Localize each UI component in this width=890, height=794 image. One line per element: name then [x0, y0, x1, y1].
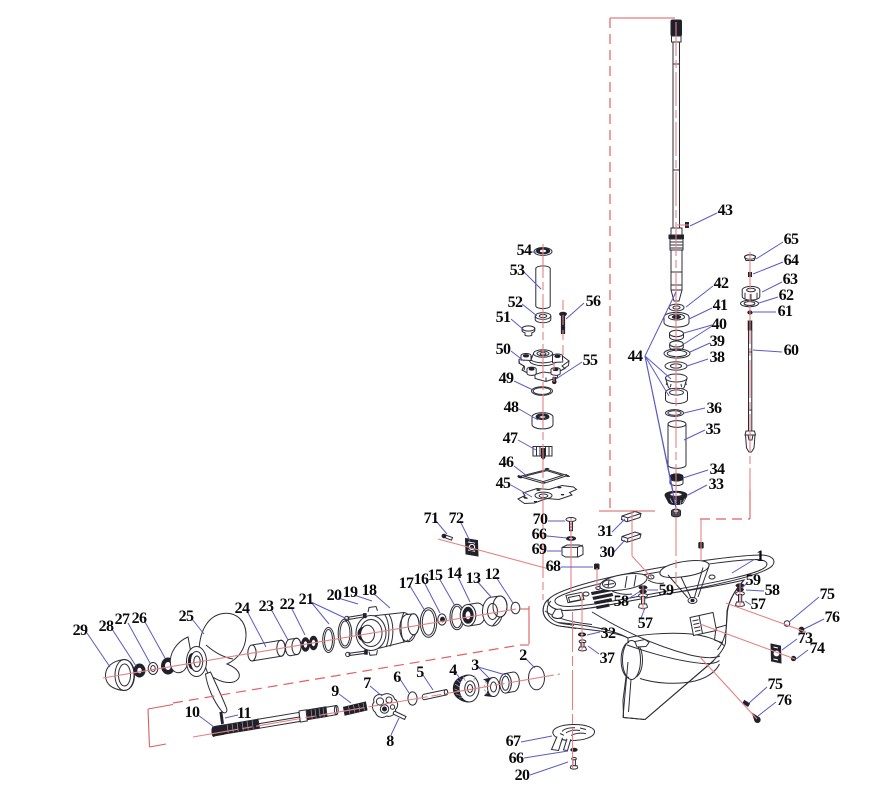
svg-text:24: 24: [235, 600, 250, 617]
svg-text:23: 23: [259, 598, 274, 615]
svg-text:75: 75: [820, 586, 835, 603]
svg-text:48: 48: [504, 399, 519, 416]
svg-text:44: 44: [628, 348, 643, 365]
svg-text:70: 70: [533, 511, 548, 528]
svg-text:2: 2: [519, 647, 527, 664]
svg-text:17: 17: [399, 575, 414, 592]
svg-text:47: 47: [503, 430, 518, 447]
svg-text:7: 7: [363, 675, 371, 692]
svg-text:76: 76: [825, 609, 840, 626]
svg-text:57: 57: [638, 615, 653, 632]
svg-text:75: 75: [768, 676, 783, 693]
svg-text:45: 45: [496, 475, 511, 492]
svg-text:4: 4: [449, 662, 457, 679]
svg-text:33: 33: [709, 476, 724, 493]
svg-text:30: 30: [600, 544, 615, 561]
svg-text:72: 72: [449, 510, 464, 527]
svg-text:39: 39: [710, 333, 725, 350]
svg-text:67: 67: [506, 733, 521, 750]
svg-text:10: 10: [185, 704, 200, 721]
svg-text:18: 18: [362, 582, 377, 599]
svg-text:59: 59: [746, 572, 761, 589]
svg-text:53: 53: [510, 262, 525, 279]
svg-text:15: 15: [428, 567, 443, 584]
svg-text:11: 11: [237, 705, 252, 722]
svg-text:32: 32: [601, 625, 616, 642]
svg-text:58: 58: [614, 593, 629, 610]
svg-text:41: 41: [713, 297, 728, 314]
svg-text:64: 64: [784, 252, 799, 269]
svg-text:21: 21: [299, 591, 314, 608]
svg-text:31: 31: [598, 523, 613, 540]
svg-text:9: 9: [331, 683, 339, 700]
svg-text:6: 6: [393, 669, 401, 686]
svg-text:19: 19: [343, 584, 358, 601]
svg-text:51: 51: [496, 309, 511, 326]
svg-text:76: 76: [777, 692, 792, 709]
svg-text:12: 12: [485, 566, 500, 583]
svg-text:52: 52: [508, 294, 523, 311]
svg-text:34: 34: [710, 461, 725, 478]
svg-text:49: 49: [499, 370, 514, 387]
svg-text:63: 63: [783, 271, 798, 288]
svg-text:38: 38: [710, 349, 725, 366]
svg-text:69: 69: [532, 541, 547, 558]
svg-text:28: 28: [99, 618, 114, 635]
svg-text:68: 68: [546, 558, 561, 575]
svg-text:56: 56: [586, 293, 601, 310]
svg-text:8: 8: [386, 733, 394, 750]
svg-text:29: 29: [73, 622, 88, 639]
svg-text:46: 46: [499, 454, 514, 471]
svg-text:16: 16: [414, 571, 429, 588]
svg-text:22: 22: [280, 596, 295, 613]
svg-text:58: 58: [765, 582, 780, 599]
svg-text:65: 65: [784, 231, 799, 248]
svg-text:35: 35: [706, 421, 721, 438]
svg-text:71: 71: [424, 510, 439, 527]
svg-text:36: 36: [707, 400, 722, 417]
svg-text:20: 20: [327, 587, 342, 604]
svg-text:27: 27: [115, 611, 130, 628]
svg-text:40: 40: [712, 316, 727, 333]
svg-text:42: 42: [714, 275, 729, 292]
svg-text:59: 59: [659, 582, 674, 599]
svg-text:14: 14: [447, 565, 462, 582]
svg-text:26: 26: [132, 610, 147, 627]
svg-text:3: 3: [471, 657, 479, 674]
svg-text:61: 61: [778, 303, 793, 320]
svg-text:13: 13: [466, 570, 481, 587]
svg-text:74: 74: [810, 640, 825, 657]
svg-text:1: 1: [756, 548, 764, 565]
svg-text:37: 37: [600, 650, 615, 667]
svg-text:5: 5: [416, 664, 424, 681]
svg-text:25: 25: [179, 608, 194, 625]
svg-text:20: 20: [515, 767, 530, 784]
svg-text:66: 66: [509, 750, 524, 767]
svg-text:43: 43: [718, 202, 733, 219]
svg-text:60: 60: [784, 342, 799, 359]
svg-text:62: 62: [779, 287, 794, 304]
svg-text:55: 55: [583, 352, 598, 369]
svg-text:50: 50: [496, 341, 511, 358]
svg-text:54: 54: [517, 242, 532, 259]
